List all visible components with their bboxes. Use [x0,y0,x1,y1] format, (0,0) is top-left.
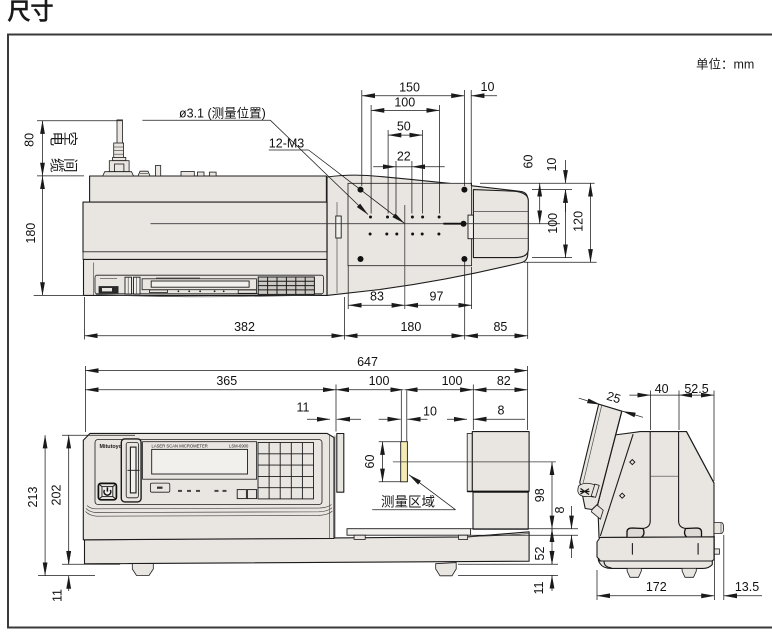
svg-text:Mitutoyo: Mitutoyo [100,444,123,450]
svg-text:22: 22 [397,149,411,163]
svg-text:10: 10 [545,158,559,172]
svg-text:97: 97 [430,289,444,303]
svg-text:647: 647 [357,355,378,369]
svg-text:11: 11 [532,581,546,594]
svg-text:ø3.1 (测量位置): ø3.1 (测量位置) [179,106,266,121]
svg-text:测量区域: 测量区域 [381,495,435,510]
svg-text:空间: 空间 [61,132,78,185]
svg-text:213: 213 [26,487,40,508]
svg-text:150: 150 [399,81,420,95]
svg-text:11: 11 [51,589,65,602]
svg-text:120: 120 [572,211,586,232]
svg-text:11: 11 [297,401,310,415]
svg-text:LSM-6900: LSM-6900 [229,443,249,448]
svg-text:12-M3: 12-M3 [269,136,304,150]
svg-text:50: 50 [397,120,411,134]
svg-text:172: 172 [646,580,667,594]
svg-text:180: 180 [24,223,38,244]
svg-text:100: 100 [394,95,415,109]
svg-text:100: 100 [442,374,463,388]
svg-text:40: 40 [655,382,669,396]
svg-text:83: 83 [370,289,384,303]
svg-text:52.5: 52.5 [684,382,708,396]
svg-text:尺寸: 尺寸 [8,0,54,24]
svg-text:60: 60 [363,455,377,469]
svg-text:LASER SCAN MICROMETER: LASER SCAN MICROMETER [152,443,208,448]
svg-text:382: 382 [234,320,255,334]
svg-text:365: 365 [216,374,237,388]
svg-text:82: 82 [497,374,511,388]
svg-text:100: 100 [369,374,390,388]
svg-text:10: 10 [481,80,495,94]
svg-text:52: 52 [533,547,547,561]
svg-text:10: 10 [423,404,437,418]
svg-text:8: 8 [498,404,505,418]
svg-text:60: 60 [522,155,536,169]
svg-text:85: 85 [493,320,507,334]
svg-text:100: 100 [546,213,560,234]
svg-text:8: 8 [553,506,567,513]
svg-text:98: 98 [533,488,547,502]
svg-text:单位：mm: 单位：mm [696,57,754,72]
svg-text:80: 80 [23,133,37,147]
svg-text:13.5: 13.5 [735,580,759,594]
svg-text:202: 202 [50,485,64,506]
svg-text:180: 180 [400,320,421,334]
